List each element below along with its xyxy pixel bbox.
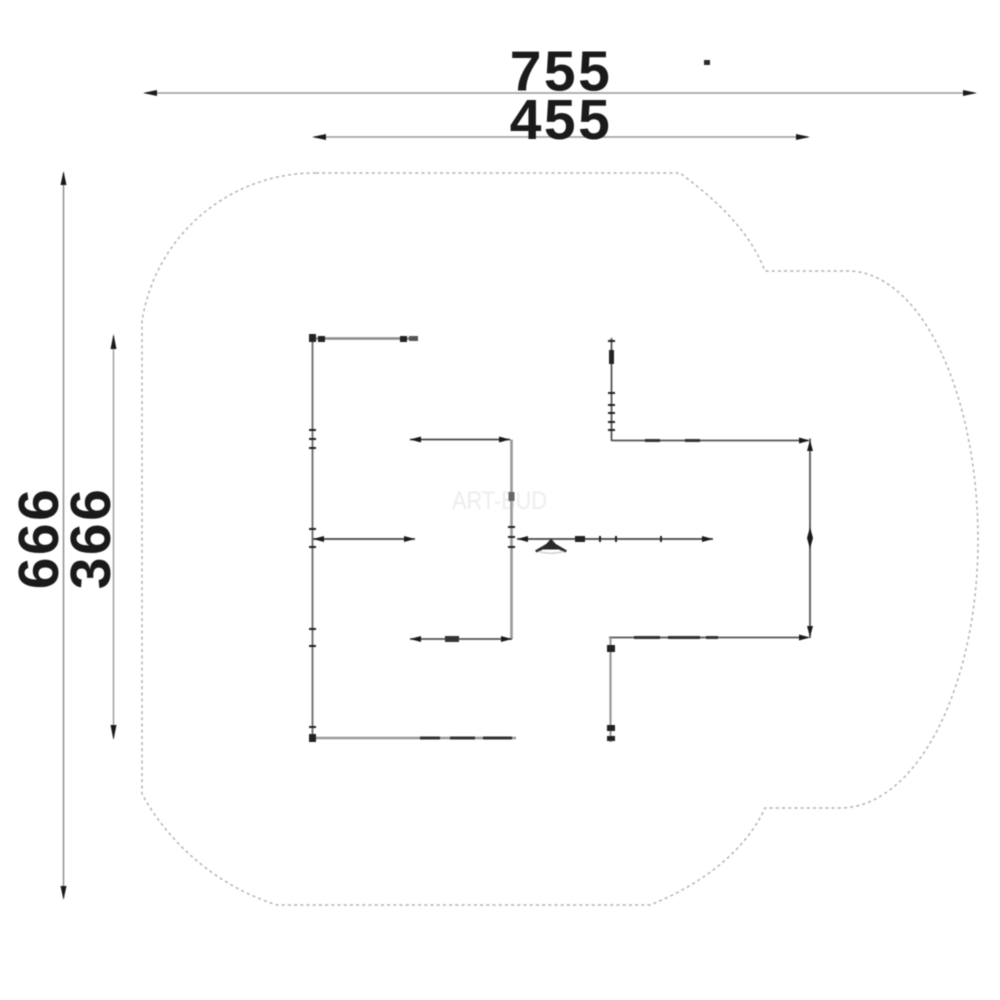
svg-text:366: 366: [59, 487, 123, 590]
svg-text:455: 455: [510, 88, 613, 152]
svg-text:ART-BUD: ART-BUD: [452, 487, 547, 515]
